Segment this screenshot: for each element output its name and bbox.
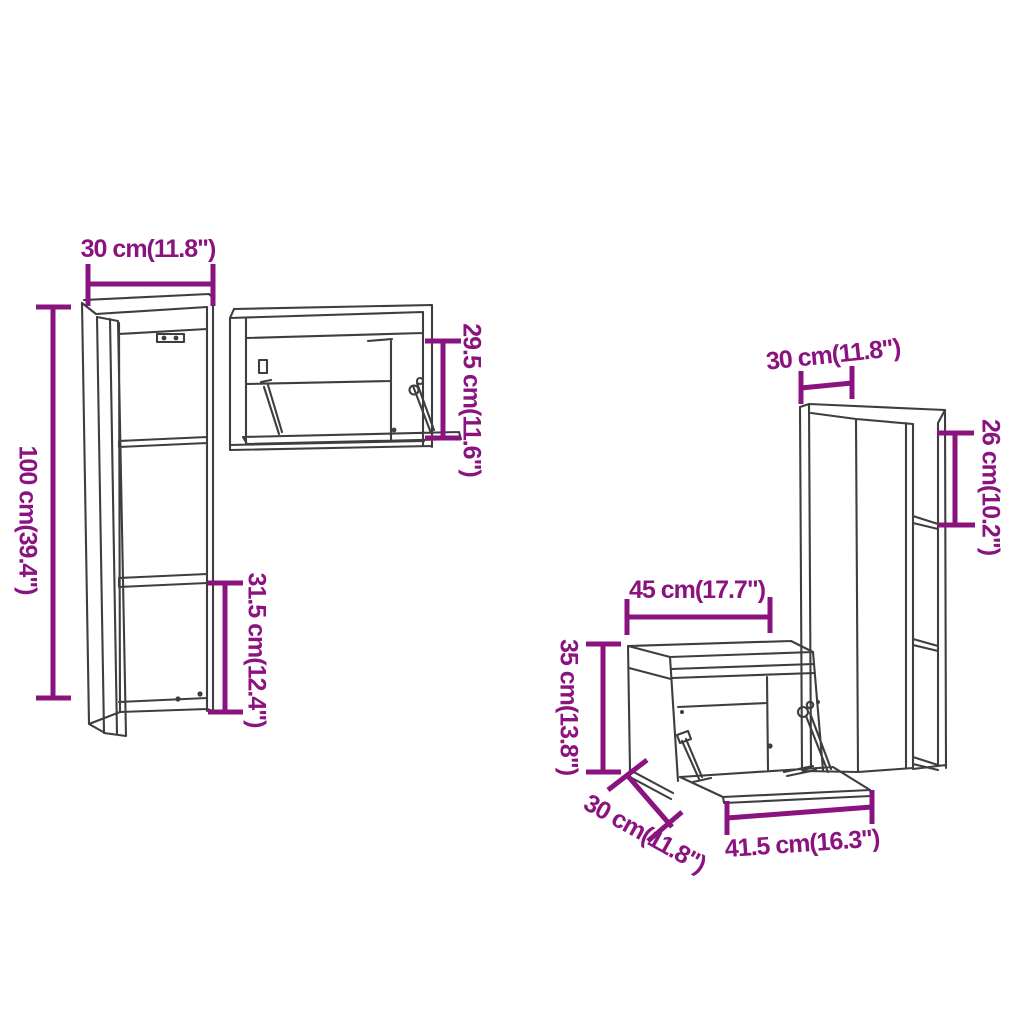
cabinet-b-hole [392,428,397,433]
dim-cabinet-c-top-section-line [937,433,975,525]
dim-cabinet-d-depth-label: 30 cm(11.8") [579,789,711,879]
cabinet-a-hole [197,691,202,696]
diagram-canvas: 30 cm(11.8") 100 cm(39.4") 31.5 cm(12.4"… [0,0,1024,1024]
cabinet-a-hole [174,336,179,341]
cabinet-d-hole [816,700,820,704]
dim-cabinet-a-lower-section-label: 31.5 cm(12.4") [242,573,270,729]
dim-cabinet-d-height-line [586,644,621,772]
dim-cabinet-c-width-line [801,366,852,404]
dim-cabinet-d-flap-width-label: 41.5 cm(16.3") [724,824,881,863]
dim-cabinet-d-height-label: 35 cm(13.8") [554,639,582,776]
dim-cabinet-c-top-section-label: 26 cm(10.2") [976,419,1004,556]
cabinet-c-drawing [800,404,946,772]
dim-cabinet-d-width-label: 45 cm(17.7") [629,576,766,604]
dimension-diagram: 30 cm(11.8") 100 cm(39.4") 31.5 cm(12.4"… [0,0,1024,1024]
cabinet-d-hole [767,743,772,748]
cabinet-d-hinge-icon [798,707,808,717]
cabinet-b-drawing [230,305,461,450]
cabinet-a-hole [175,696,180,701]
dim-cabinet-b-opening-height-line [425,341,461,438]
cabinet-d-drawing [628,641,871,803]
dim-cabinet-b-opening-height-label: 29.5 cm(11.6") [457,323,485,477]
cabinet-a-hole [162,336,167,341]
dim-cabinet-a-width-label: 30 cm(11.8") [81,235,216,263]
dim-cabinet-c-width-label: 30 cm(11.8") [765,334,903,376]
cabinet-b-hinge-icon [417,378,423,384]
cabinet-d-hole [680,710,684,714]
dim-cabinet-a-height-label: 100 cm(39.4") [13,446,41,596]
cabinet-a-drawing [82,294,213,736]
